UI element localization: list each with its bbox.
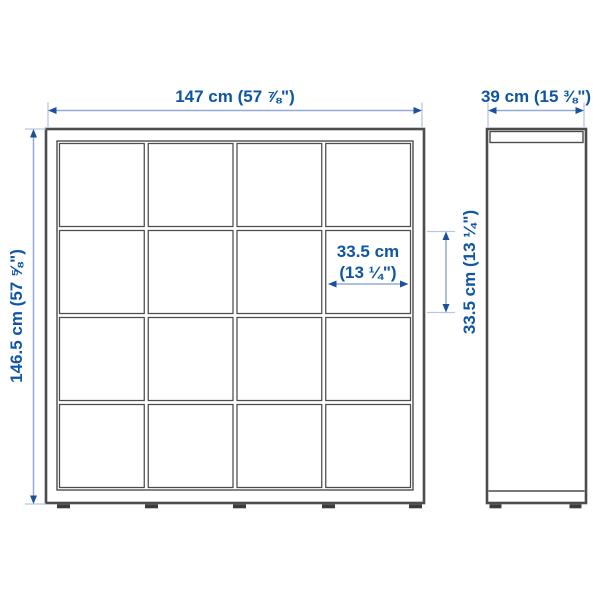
front-height-dimension-line (25, 129, 46, 504)
arrow-left-icon (48, 107, 57, 114)
front-foot (57, 504, 70, 508)
side-foot (570, 504, 582, 508)
shelf-cell (326, 144, 411, 227)
side-view (487, 129, 586, 508)
shelf-cell (60, 231, 145, 314)
arrow-up-icon (443, 232, 450, 241)
shelf-cell (60, 144, 145, 227)
arrow-right-icon (414, 107, 423, 114)
shelf-cell (148, 144, 233, 227)
shelf-cell (60, 405, 145, 488)
compartment-width-label-line2: (13 ¼") (318, 262, 418, 283)
arrow-down-icon (443, 304, 450, 313)
side-outer-frame (487, 129, 586, 503)
front-view (46, 129, 424, 508)
compartment-width-label: 33.5 cm (13 ¼") (318, 241, 418, 283)
shelf-cell (237, 144, 322, 227)
shelf-cell (148, 231, 233, 314)
shelf-cell (148, 405, 233, 488)
front-foot (233, 504, 246, 508)
shelf-cell (237, 405, 322, 488)
shelf-cell (237, 231, 322, 314)
arrow-up-icon (30, 129, 37, 138)
compartment-height-dimension-line (427, 232, 455, 313)
product-dimension-diagram: 147 cm (57 ⅞") 39 cm (15 ⅜") 146.5 cm (5… (0, 0, 600, 600)
side-foot (490, 504, 502, 508)
front-foot (145, 504, 158, 508)
shelf-cell (326, 405, 411, 488)
front-feet (57, 504, 422, 508)
compartment-height-label: 33.5 cm (13 ¼") (459, 192, 479, 352)
side-depth-label: 39 cm (15 ⅜") (436, 86, 600, 107)
arrow-down-icon (30, 496, 37, 505)
front-foot (409, 504, 422, 508)
front-width-label: 147 cm (57 ⅞") (85, 86, 385, 107)
compartment-width-label-line1: 33.5 cm (318, 241, 418, 262)
arrow-left-icon (488, 107, 497, 114)
shelf-cell (148, 318, 233, 401)
shelf-cell (237, 318, 322, 401)
arrow-right-icon (576, 107, 585, 114)
front-height-label: 146.5 cm (57 ⅝") (6, 216, 26, 416)
shelf-cell (326, 318, 411, 401)
shelf-cell (60, 318, 145, 401)
front-foot (322, 504, 335, 508)
